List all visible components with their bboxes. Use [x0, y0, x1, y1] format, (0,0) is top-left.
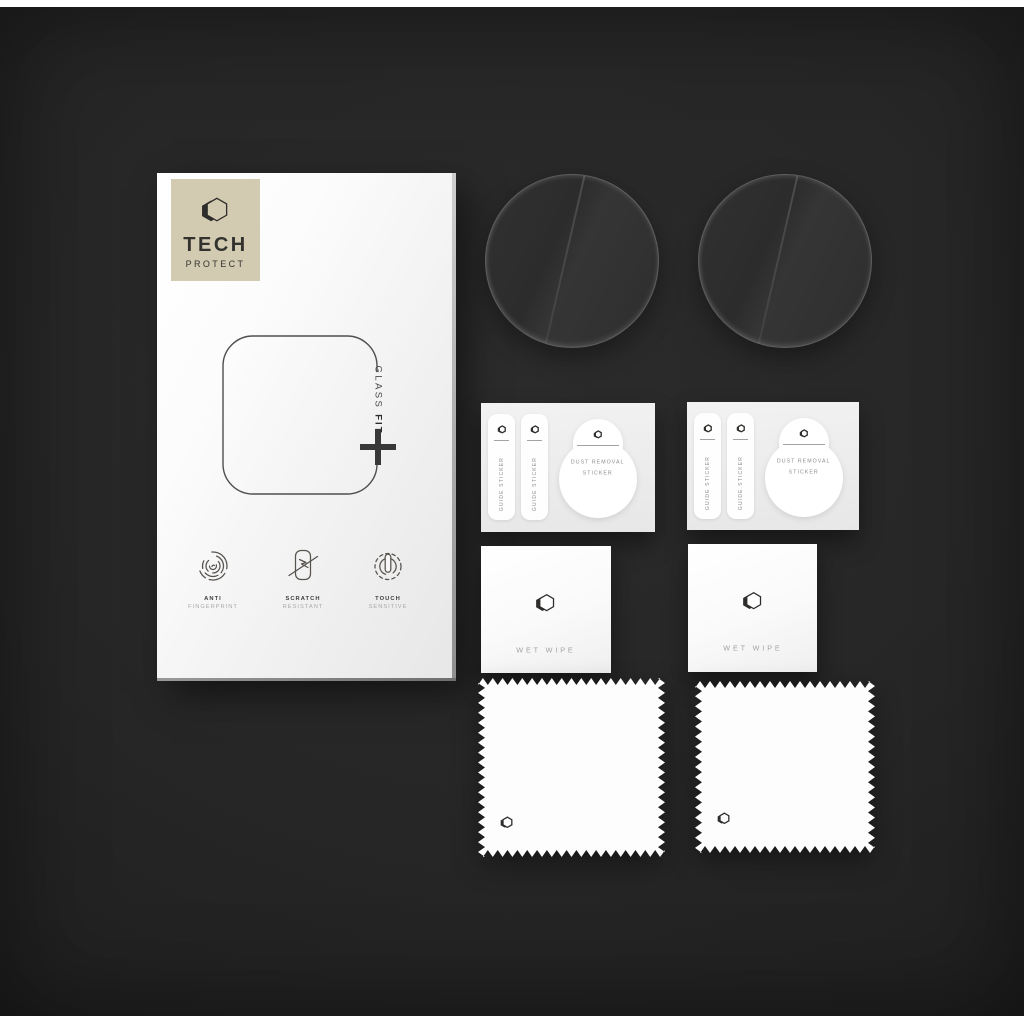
- dust-removal-sticker: DUST REMOVAL STICKER: [556, 417, 640, 518]
- brand-name: TECH: [183, 234, 247, 257]
- hexagon-logo-icon: [529, 424, 541, 435]
- wet-wipe-packet-left: WET WIPE: [481, 546, 611, 673]
- feature-title: SCRATCH: [262, 596, 344, 602]
- tech-protect-hexagon-icon: [196, 192, 236, 228]
- feature-subtitle: FINGERPRINT: [172, 604, 254, 610]
- dust-removal-label: DUST REMOVAL: [571, 459, 625, 467]
- microfiber-cloth-left: [478, 678, 665, 857]
- touch-icon: [370, 548, 406, 584]
- watch-outline-frame: [222, 335, 378, 495]
- divider: [577, 445, 619, 446]
- guide-sticker-label: GUIDE STICKER: [738, 456, 743, 510]
- divider: [783, 444, 825, 445]
- hexagon-logo-icon: [739, 588, 767, 614]
- hexagon-logo-icon: [496, 424, 508, 435]
- glass-disc-left: [485, 174, 659, 348]
- dust-removal-label: DUST REMOVAL: [777, 458, 831, 466]
- fingerprint-icon: [195, 548, 231, 584]
- wet-wipe-label: WET WIPE: [516, 646, 575, 654]
- plus-mark-icon: [360, 429, 396, 465]
- hexagon-logo-icon: [702, 423, 714, 434]
- guide-sticker: GUIDE STICKER: [521, 414, 548, 520]
- feature-subtitle: RESISTANT: [262, 604, 344, 610]
- retail-box: TECH PROTECT GLASS FIT ANTI FINGERPRINT: [157, 173, 452, 678]
- guide-sticker: GUIDE STICKER: [488, 414, 515, 520]
- feature-title: ANTI: [172, 596, 254, 602]
- guide-sticker-label: GUIDE STICKER: [705, 456, 710, 510]
- hexagon-logo-icon: [798, 428, 810, 439]
- wet-wipe-packet-right: WET WIPE: [688, 544, 817, 672]
- sticker-sheet-right: GUIDE STICKER GUIDE STICKER DUST REMOVAL…: [687, 402, 859, 530]
- hexagon-logo-icon: [498, 814, 516, 831]
- hexagon-logo-icon: [735, 423, 747, 434]
- brand-logo-tile: TECH PROTECT: [171, 179, 260, 281]
- guide-sticker-label: GUIDE STICKER: [532, 457, 537, 511]
- glass-fit-regular: GLASS: [373, 366, 384, 415]
- hexagon-logo-icon: [532, 590, 560, 616]
- guide-sticker: GUIDE STICKER: [727, 413, 754, 519]
- product-photo: TECH PROTECT GLASS FIT ANTI FINGERPRINT: [0, 0, 1024, 1024]
- wet-wipe-label: WET WIPE: [723, 644, 782, 652]
- guide-sticker-label: GUIDE STICKER: [499, 457, 504, 511]
- brand-subname: PROTECT: [186, 259, 246, 269]
- microfiber-cloth-right: [695, 681, 875, 853]
- dust-removal-sticker: DUST REMOVAL STICKER: [762, 416, 846, 517]
- feature-title: TOUCH: [347, 596, 429, 602]
- dust-removal-label: STICKER: [777, 469, 831, 477]
- scratch-icon: [285, 548, 321, 584]
- dust-removal-label: STICKER: [571, 470, 625, 478]
- hexagon-logo-icon: [715, 810, 733, 827]
- hexagon-logo-icon: [592, 429, 604, 440]
- guide-sticker: GUIDE STICKER: [694, 413, 721, 519]
- sticker-sheet-left: GUIDE STICKER GUIDE STICKER DUST REMOVAL…: [481, 403, 655, 532]
- feature-subtitle: SENSITIVE: [347, 604, 429, 610]
- feature-anti-fingerprint: ANTI FINGERPRINT: [163, 548, 263, 611]
- feature-touch-sensitive: TOUCH SENSITIVE: [338, 548, 438, 611]
- glass-disc-right: [698, 174, 872, 348]
